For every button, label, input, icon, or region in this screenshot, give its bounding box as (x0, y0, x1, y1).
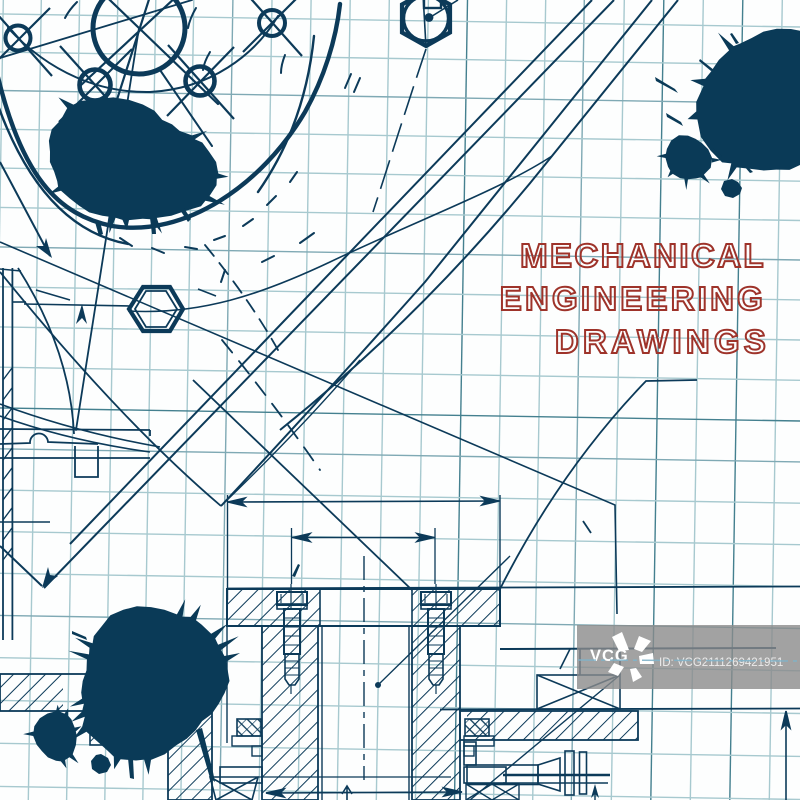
svg-text:ID: VCG2111269421951: ID: VCG2111269421951 (659, 657, 783, 669)
svg-text:DRAWINGS: DRAWINGS (555, 323, 770, 360)
svg-text:ENGINEERING: ENGINEERING (500, 280, 766, 317)
svg-text:MECHANICAL: MECHANICAL (520, 237, 766, 274)
